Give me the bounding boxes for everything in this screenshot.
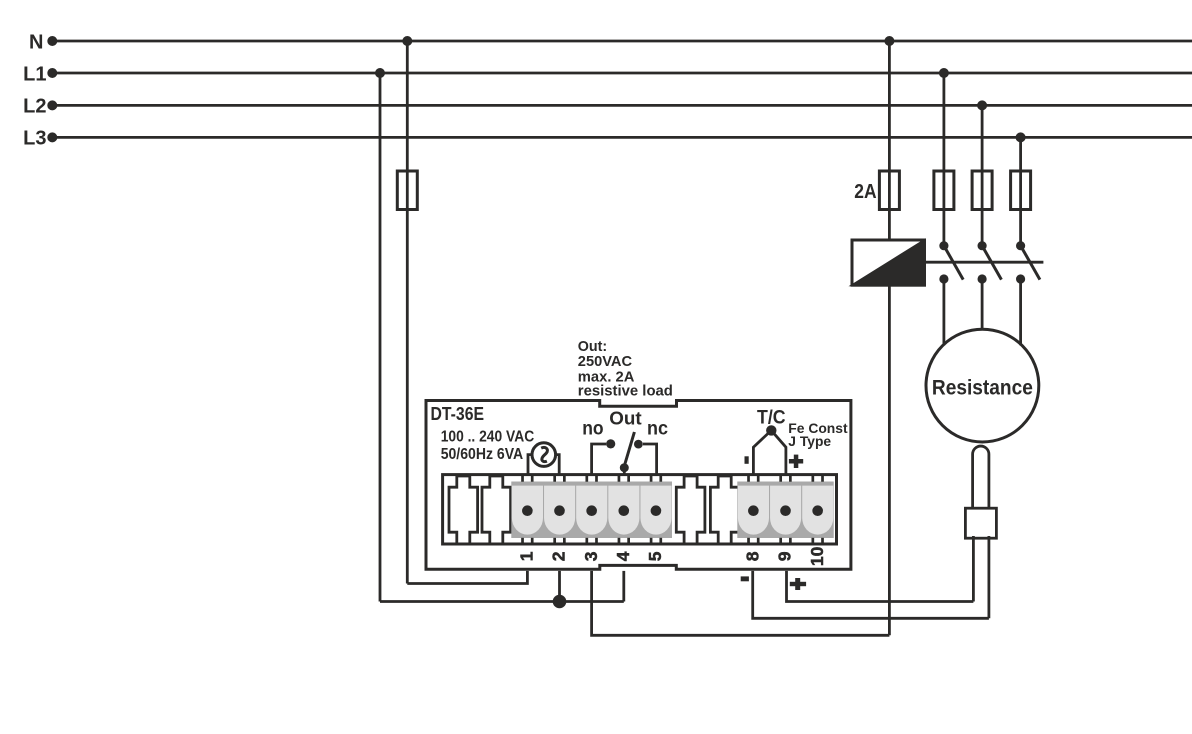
svg-text:T/C: T/C xyxy=(757,407,786,429)
svg-text:8: 8 xyxy=(742,551,762,561)
svg-text:2A: 2A xyxy=(854,181,876,203)
svg-text:Resistance: Resistance xyxy=(932,377,1033,400)
svg-text:nc: nc xyxy=(647,419,668,440)
svg-text:DT-36E: DT-36E xyxy=(431,404,485,424)
svg-text:5: 5 xyxy=(645,551,665,561)
svg-text:100 .. 240 VAC: 100 .. 240 VAC xyxy=(441,429,535,446)
svg-text:10: 10 xyxy=(807,546,827,566)
svg-text:L3: L3 xyxy=(23,128,46,150)
svg-text:3: 3 xyxy=(581,551,601,561)
svg-text:resistive load: resistive load xyxy=(578,383,673,400)
svg-text:50/60Hz 6VA: 50/60Hz 6VA xyxy=(441,446,524,463)
svg-text:1: 1 xyxy=(516,551,536,561)
svg-text:L2: L2 xyxy=(23,96,46,118)
svg-text:2: 2 xyxy=(549,551,569,561)
svg-text:N: N xyxy=(29,31,43,53)
svg-text:9: 9 xyxy=(775,551,795,561)
svg-text:L1: L1 xyxy=(23,63,46,85)
svg-text:J Type: J Type xyxy=(788,433,831,449)
svg-text:Out: Out xyxy=(609,408,641,429)
svg-text:4: 4 xyxy=(613,551,633,561)
svg-text:no: no xyxy=(582,419,603,440)
